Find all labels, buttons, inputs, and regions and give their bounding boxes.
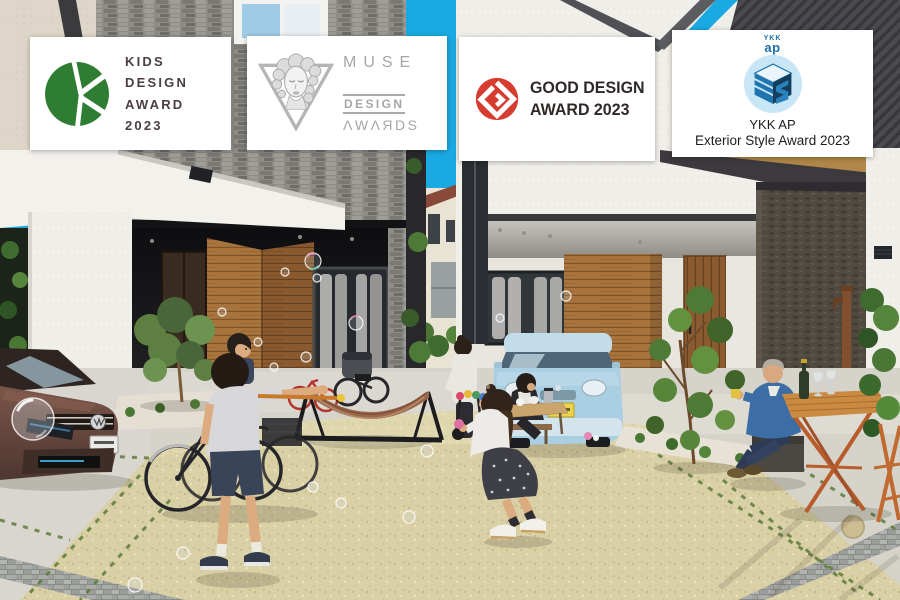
muse-face-triangle-logo — [253, 48, 339, 138]
es-cube-icon — [750, 61, 796, 107]
badge-line: ΛWΛЯDS — [343, 117, 419, 133]
badge-line: AWARD 2023 — [530, 99, 645, 121]
big-soap-bubble — [12, 398, 54, 440]
es-cube-logo — [744, 55, 802, 113]
ykk-ap-logo: YKK ap — [672, 30, 873, 54]
award-badge-ykk-ap-exterior-style: YKK ap YKK AP Exterior Style Award 2023 — [672, 30, 873, 157]
award-badge-good-design: GOOD DESIGN AWARD 2023 — [459, 37, 655, 161]
badge-line: DESIGN — [125, 72, 188, 93]
wall-vent — [874, 246, 892, 259]
badge-line: KIDS — [125, 51, 188, 72]
awarded-house-photo-banner: KIDS DESIGN AWARD 2023 MUSE DESIGN ΛWΛЯD… — [0, 0, 900, 600]
badge-line: 2023 — [125, 115, 188, 136]
award-badge-kids-design: KIDS DESIGN AWARD 2023 — [30, 37, 231, 150]
badge-line: AWARD — [125, 94, 188, 115]
badge-line: GOOD DESIGN — [530, 77, 645, 99]
good-design-award-text: GOOD DESIGN AWARD 2023 — [530, 77, 645, 121]
badge-line: MUSE — [343, 54, 419, 72]
badge-line: DESIGN — [343, 94, 405, 114]
kids-design-award-text: KIDS DESIGN AWARD 2023 — [125, 51, 188, 135]
kids-design-k-logo — [43, 60, 111, 128]
left-wing-window — [462, 152, 488, 344]
muse-awards-text: MUSE DESIGN ΛWΛЯDS — [343, 54, 419, 133]
badge-line: Exterior Style Award 2023 — [672, 133, 873, 150]
badge-caption: ap — [672, 41, 873, 54]
g-mark-logo — [474, 76, 520, 122]
award-badge-muse-design: MUSE DESIGN ΛWΛЯDS — [247, 36, 447, 150]
badge-line: YKK AP — [672, 117, 873, 133]
